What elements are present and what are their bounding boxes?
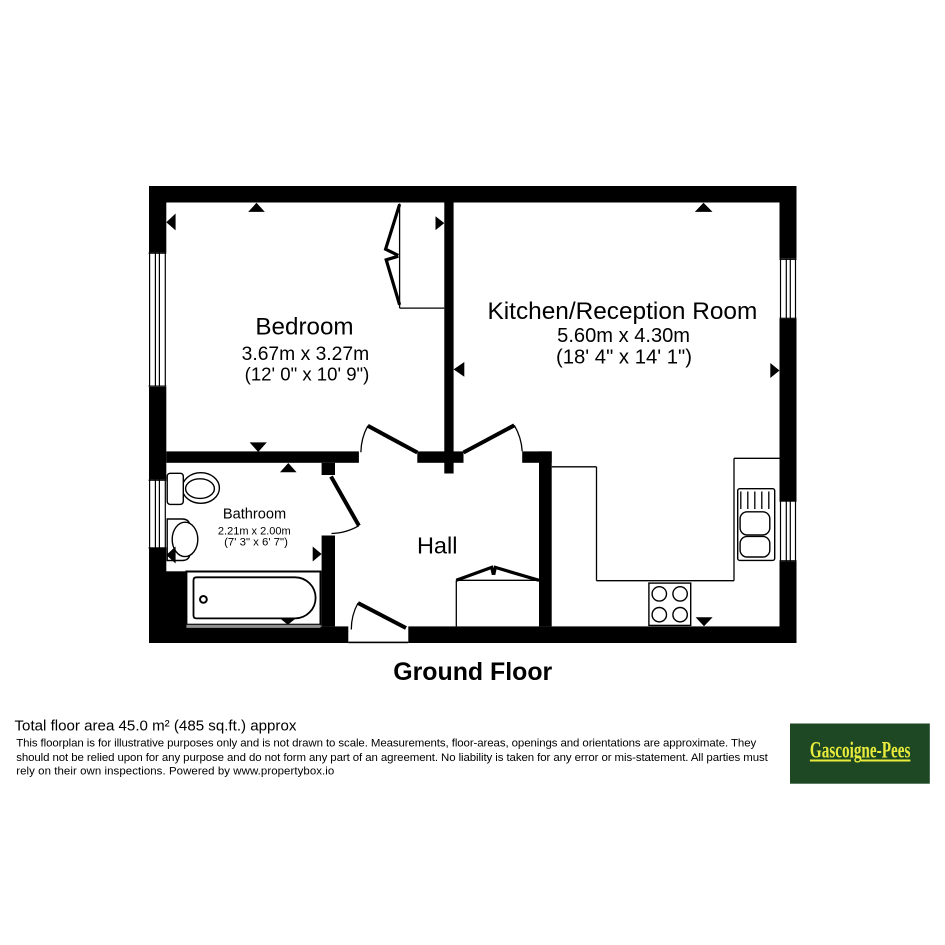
svg-text:Kitchen/Reception Room: Kitchen/Reception Room	[487, 298, 757, 325]
svg-text:(7' 3" x 6' 7"): (7' 3" x 6' 7")	[224, 536, 288, 548]
svg-text:Gascoigne-Pees: Gascoigne-Pees	[810, 738, 911, 763]
svg-text:rely on their own inspections.: rely on their own inspections. Powered b…	[16, 766, 334, 778]
svg-text:should not be relied upon for: should not be relied upon for any purpos…	[16, 752, 768, 764]
svg-text:(12' 0" x 10' 9"): (12' 0" x 10' 9")	[245, 363, 370, 384]
svg-text:(18' 4" x 14' 1"): (18' 4" x 14' 1")	[556, 346, 692, 368]
svg-text:3.67m x 3.27m: 3.67m x 3.27m	[242, 344, 370, 365]
svg-text:Bedroom: Bedroom	[255, 314, 353, 341]
svg-text:Total floor area 45.0 m² (485: Total floor area 45.0 m² (485 sq.ft.) ap…	[15, 717, 297, 734]
svg-text:Bathroom: Bathroom	[223, 507, 286, 523]
svg-text:5.60m x 4.30m: 5.60m x 4.30m	[557, 325, 690, 347]
svg-text:This floorplan is for illustra: This floorplan is for illustrative purpo…	[16, 738, 756, 750]
svg-text:Ground Floor: Ground Floor	[393, 658, 552, 686]
svg-text:Hall: Hall	[417, 533, 457, 559]
